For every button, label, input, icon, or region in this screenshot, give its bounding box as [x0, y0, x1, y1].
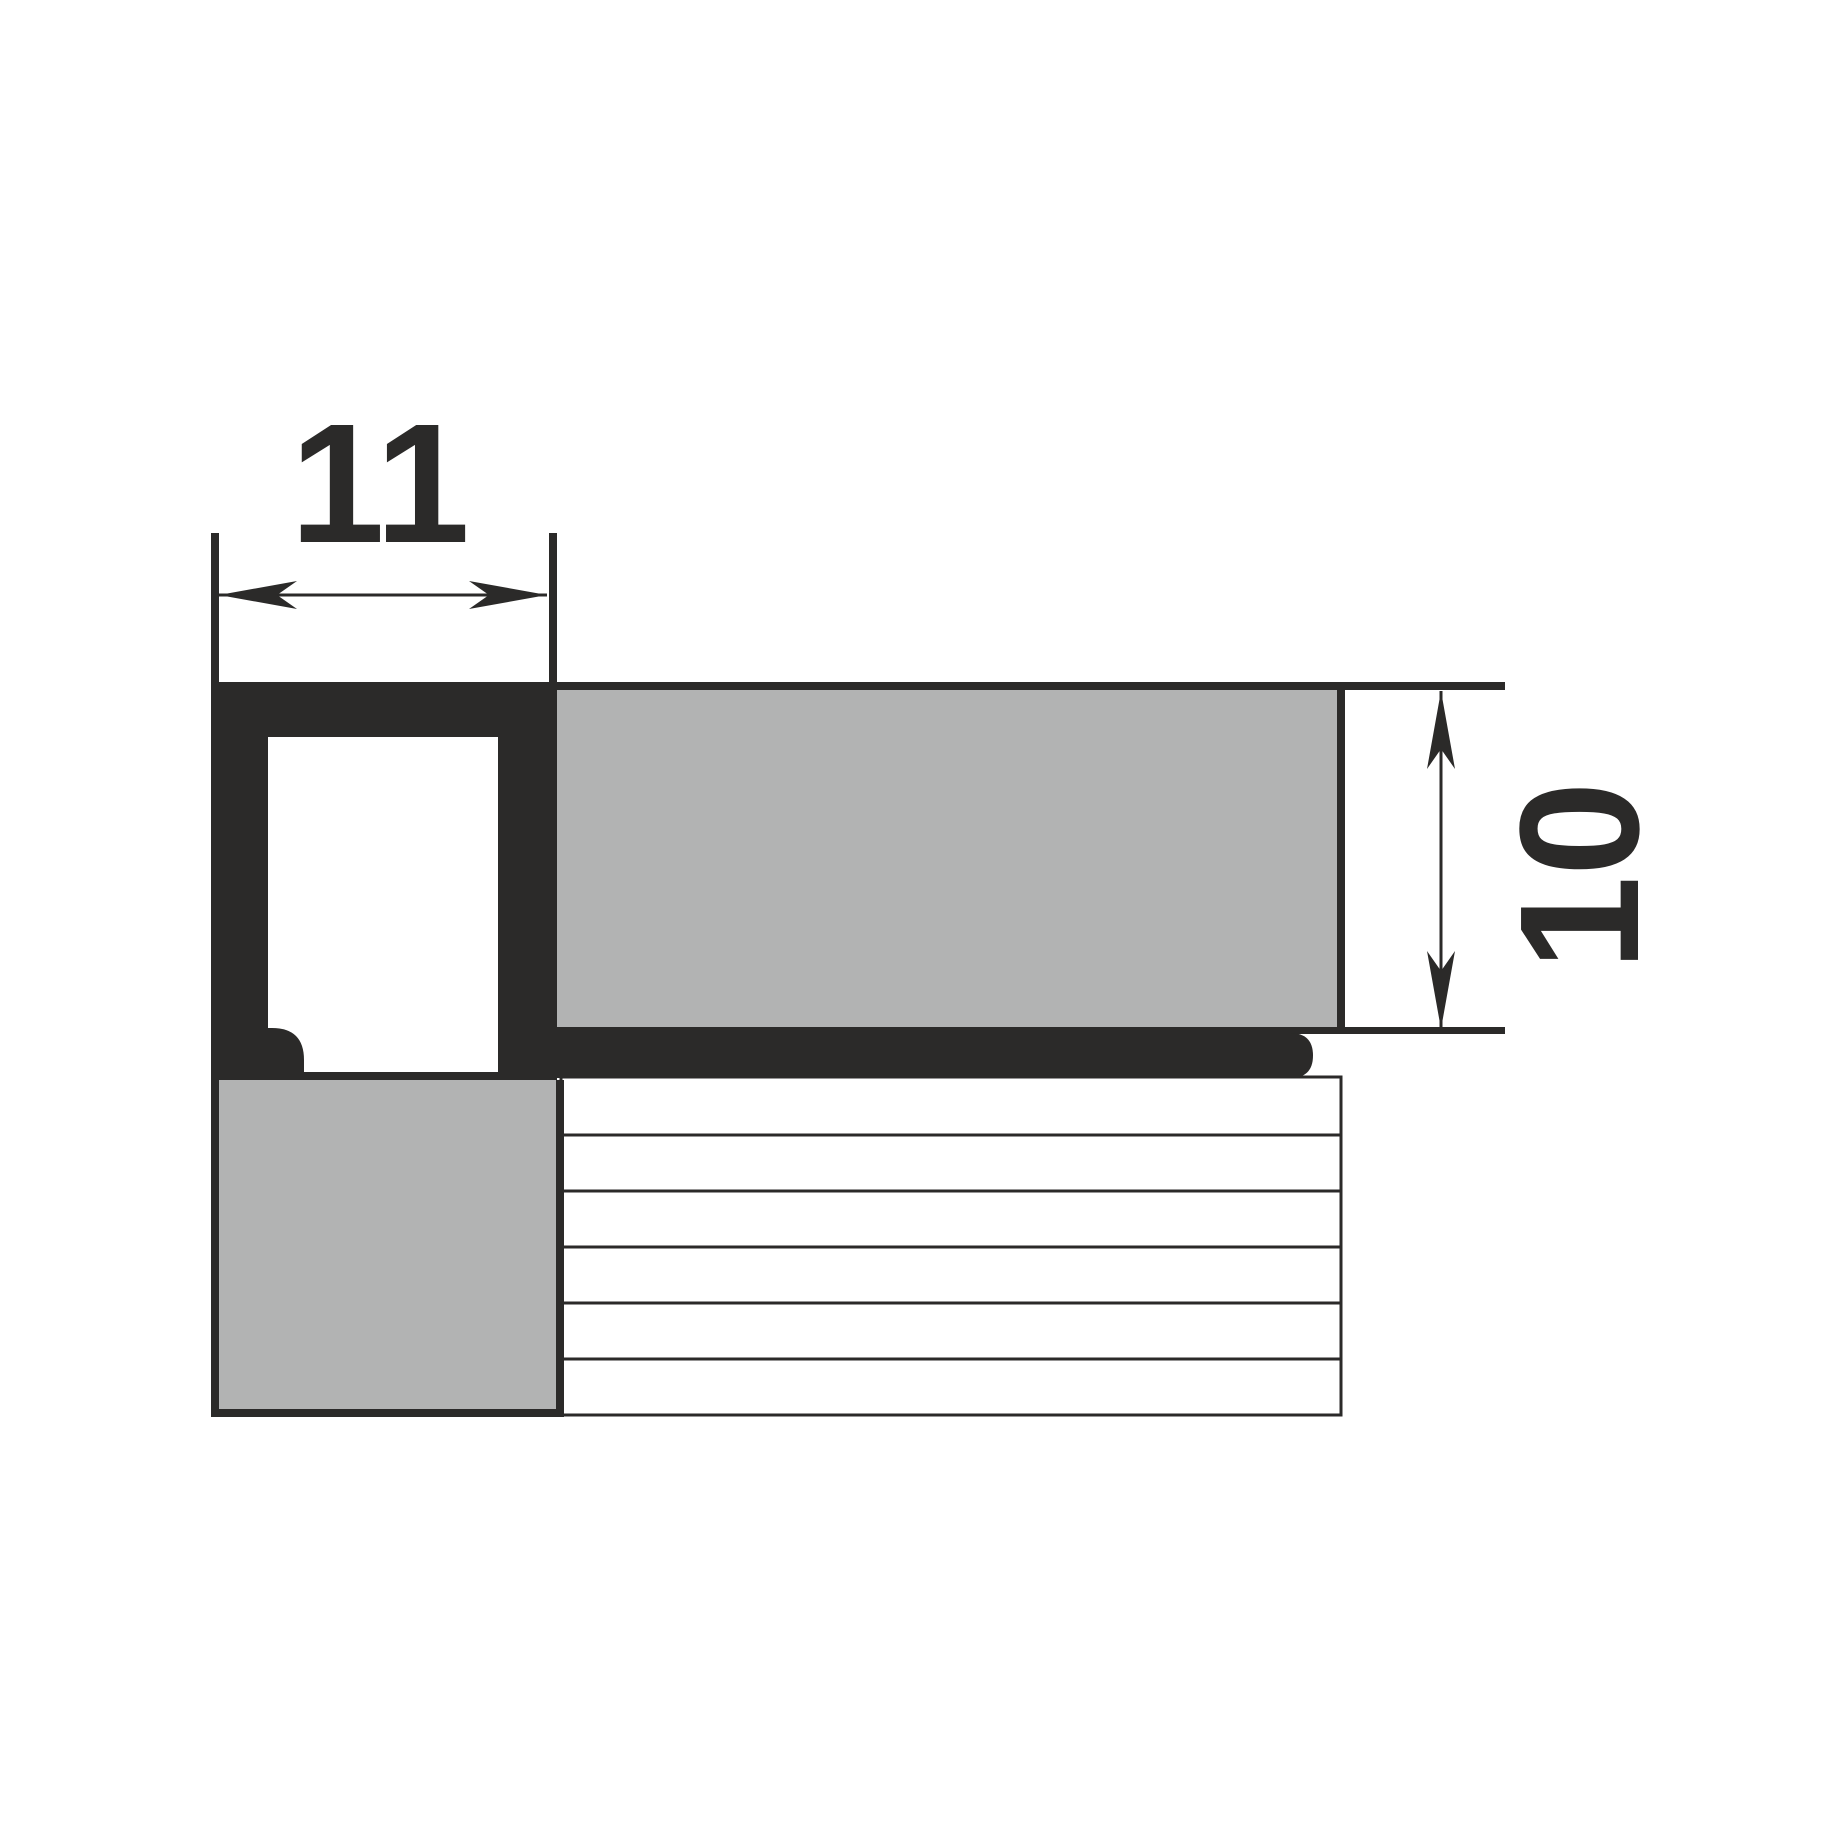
- extension-line-left: [211, 533, 219, 683]
- extension-line-right: [549, 533, 557, 683]
- trim-profile-drawing: 11 10: [0, 0, 1834, 1833]
- tile-right-edge-line: [1337, 682, 1345, 1034]
- height-dimension-label: 10: [1485, 781, 1675, 970]
- width-dimension-label: 11: [290, 389, 470, 579]
- diagram-canvas: 11 10: [0, 0, 1834, 1833]
- profile-right-wall: [498, 682, 557, 1080]
- profile-anchor-flange: [557, 1033, 1313, 1078]
- horizontal-tile-body: [557, 690, 1337, 1027]
- tile-top-line: [557, 682, 1505, 690]
- adhesive-hatch-area: [561, 1077, 1341, 1415]
- vertical-tile: [211, 1080, 564, 1417]
- profile-bottom-wall: [211, 1072, 557, 1080]
- profile-left-wall: [211, 682, 268, 1080]
- tile-bottom-line: [557, 1027, 1505, 1034]
- vertical-tile-body: [219, 1080, 556, 1409]
